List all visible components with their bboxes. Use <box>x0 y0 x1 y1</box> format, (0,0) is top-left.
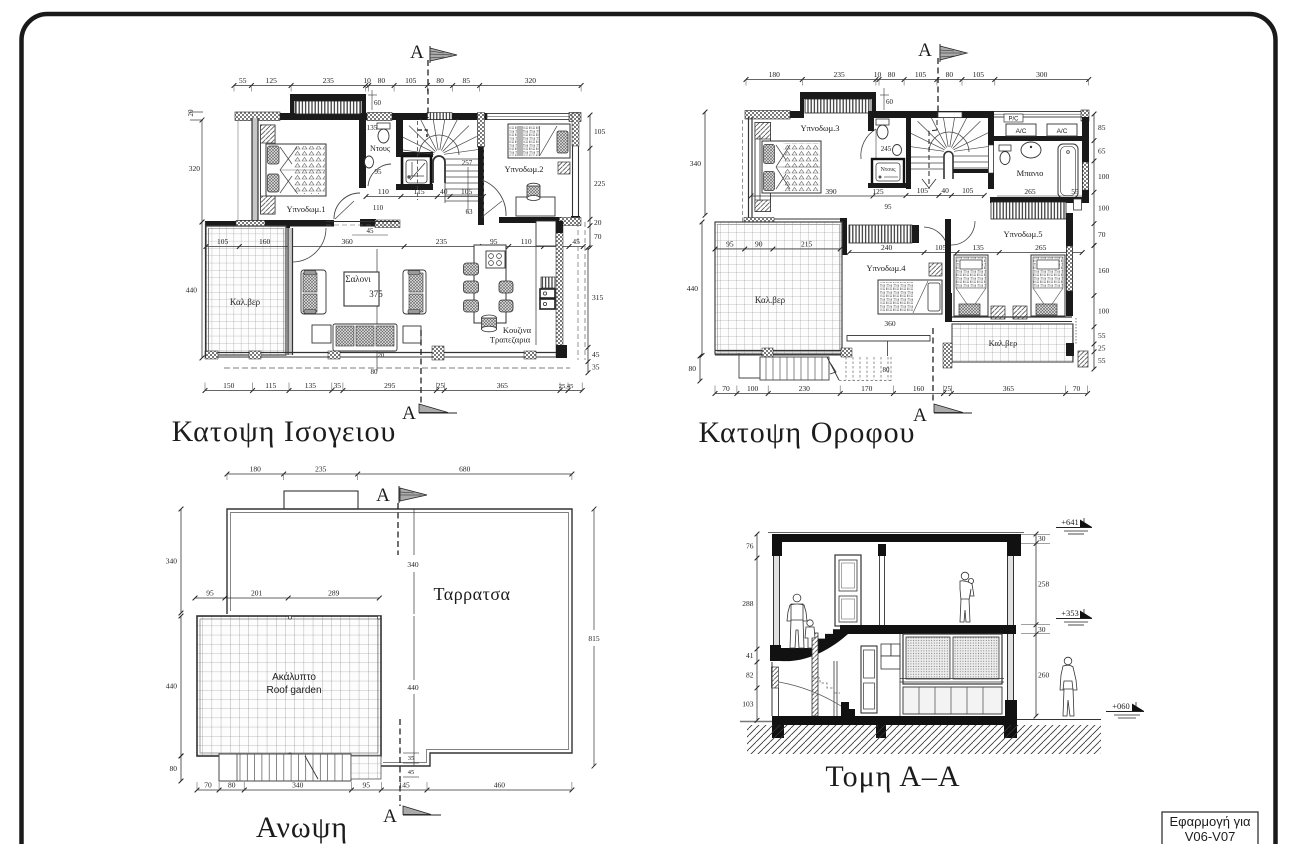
svg-text:V06-V07: V06-V07 <box>1185 829 1236 844</box>
svg-text:Μπανιο: Μπανιο <box>1017 168 1044 178</box>
svg-text:105: 105 <box>962 186 974 195</box>
svg-text:80: 80 <box>228 781 236 790</box>
svg-text:35: 35 <box>408 755 415 762</box>
svg-text:65: 65 <box>1098 146 1106 155</box>
svg-text:A: A <box>402 403 416 424</box>
svg-text:+060: +060 <box>1112 701 1130 711</box>
svg-text:80: 80 <box>170 764 178 773</box>
svg-text:76: 76 <box>746 542 754 551</box>
svg-text:320: 320 <box>189 164 201 173</box>
svg-text:680: 680 <box>459 465 471 474</box>
svg-text:Υπνοδωμ.5: Υπνοδωμ.5 <box>1003 229 1042 239</box>
svg-text:+641: +641 <box>1061 517 1079 527</box>
svg-text:265: 265 <box>1035 243 1047 252</box>
svg-text:80: 80 <box>689 364 697 373</box>
svg-text:170: 170 <box>861 384 873 393</box>
svg-text:Κατοψη Οροφου: Κατοψη Οροφου <box>698 416 915 449</box>
svg-text:135: 135 <box>305 381 317 390</box>
svg-text:95: 95 <box>885 203 893 211</box>
svg-text:135: 135 <box>367 124 378 132</box>
svg-text:Ταρρατσα: Ταρρατσα <box>434 584 511 604</box>
svg-text:160: 160 <box>913 384 925 393</box>
svg-text:60: 60 <box>886 98 894 106</box>
svg-text:201: 201 <box>251 589 263 598</box>
svg-text:95: 95 <box>726 240 734 249</box>
svg-text:460: 460 <box>494 781 506 790</box>
svg-text:240: 240 <box>881 243 893 252</box>
svg-text:80: 80 <box>883 366 891 374</box>
svg-text:300: 300 <box>1036 70 1048 79</box>
svg-text:235: 235 <box>833 70 845 79</box>
svg-text:340: 340 <box>690 159 702 168</box>
svg-text:82: 82 <box>746 670 754 679</box>
svg-text:105: 105 <box>405 76 417 85</box>
svg-text:A/C: A/C <box>1016 128 1027 135</box>
svg-text:45: 45 <box>592 350 600 359</box>
svg-text:30: 30 <box>1038 534 1046 543</box>
svg-text:25,45: 25,45 <box>559 383 574 390</box>
svg-text:A/C: A/C <box>1057 128 1068 135</box>
svg-text:Τομη Α–Α: Τομη Α–Α <box>825 760 960 793</box>
svg-text:Ντους: Ντους <box>880 167 896 173</box>
svg-text:265: 265 <box>1024 187 1036 196</box>
svg-text:Καλ.βερ: Καλ.βερ <box>230 297 261 307</box>
svg-text:95: 95 <box>206 589 214 598</box>
svg-text:115: 115 <box>265 381 276 390</box>
svg-text:P/C: P/C <box>1008 117 1019 123</box>
svg-text:Καλ.βερ: Καλ.βερ <box>989 338 1018 348</box>
svg-text:235: 235 <box>315 465 327 474</box>
svg-text:440: 440 <box>186 286 198 295</box>
svg-text:440: 440 <box>166 682 178 691</box>
svg-text:95: 95 <box>363 781 371 790</box>
svg-text:110: 110 <box>373 204 384 212</box>
svg-text:Καλ.βερ: Καλ.βερ <box>755 295 786 305</box>
svg-text:235: 235 <box>436 237 448 246</box>
svg-text:365: 365 <box>1003 384 1015 393</box>
svg-text:25: 25 <box>437 381 445 390</box>
svg-text:70: 70 <box>594 232 602 241</box>
svg-text:257: 257 <box>462 159 473 167</box>
svg-text:360: 360 <box>884 319 896 328</box>
svg-text:103: 103 <box>742 700 754 709</box>
svg-text:360: 360 <box>341 237 353 246</box>
svg-text:85: 85 <box>462 76 470 85</box>
svg-text:235: 235 <box>323 76 335 85</box>
svg-text:110: 110 <box>378 187 389 196</box>
svg-text:100: 100 <box>1098 307 1110 316</box>
svg-text:80: 80 <box>946 70 954 79</box>
svg-text:Εφαρμογή για: Εφαρμογή για <box>1170 814 1251 829</box>
svg-text:100: 100 <box>1098 203 1110 212</box>
svg-text:10: 10 <box>874 70 882 79</box>
svg-text:Κατοψη Ισογειου: Κατοψη Ισογειου <box>172 415 397 448</box>
svg-text:45: 45 <box>367 227 375 235</box>
svg-text:20: 20 <box>187 109 195 117</box>
svg-text:A: A <box>383 806 397 827</box>
svg-text:258: 258 <box>1038 580 1050 589</box>
svg-text:80: 80 <box>888 70 896 79</box>
svg-text:70: 70 <box>722 384 730 393</box>
svg-text:110: 110 <box>521 237 532 246</box>
svg-text:105: 105 <box>935 243 947 252</box>
svg-text:25: 25 <box>1098 343 1106 352</box>
svg-text:100: 100 <box>1098 172 1110 181</box>
svg-text:105: 105 <box>915 70 927 79</box>
svg-text:365: 365 <box>497 381 509 390</box>
svg-text:440: 440 <box>407 683 419 692</box>
svg-text:115: 115 <box>414 187 425 196</box>
svg-text:180: 180 <box>250 465 262 474</box>
svg-text:Υπνοδωμ.3: Υπνοδωμ.3 <box>800 123 839 133</box>
svg-text:375: 375 <box>369 289 383 299</box>
svg-text:60: 60 <box>374 99 382 107</box>
svg-text:150: 150 <box>223 381 235 390</box>
svg-text:105: 105 <box>917 186 929 195</box>
svg-text:55: 55 <box>1071 187 1079 196</box>
svg-text:35: 35 <box>592 363 600 372</box>
svg-text:340: 340 <box>166 557 178 566</box>
svg-text:Σαλονι: Σαλονι <box>345 274 371 284</box>
svg-text:41: 41 <box>746 651 754 660</box>
svg-text:340: 340 <box>407 560 419 569</box>
svg-text:40: 40 <box>440 187 448 196</box>
svg-text:125: 125 <box>872 187 884 196</box>
svg-text:85: 85 <box>1098 123 1106 132</box>
svg-text:135: 135 <box>972 243 984 252</box>
svg-text:40: 40 <box>941 186 949 195</box>
svg-text:215: 215 <box>801 240 813 249</box>
svg-text:80: 80 <box>378 76 386 85</box>
svg-text:70: 70 <box>1098 230 1106 239</box>
svg-text:340: 340 <box>292 781 304 790</box>
svg-text:245: 245 <box>881 145 892 153</box>
svg-text:Κουζινα: Κουζινα <box>503 325 532 335</box>
svg-text:45: 45 <box>408 769 415 776</box>
svg-text:70: 70 <box>1073 384 1081 393</box>
svg-text:440: 440 <box>687 284 699 293</box>
svg-text:260: 260 <box>1038 671 1050 680</box>
svg-text:815: 815 <box>588 634 600 643</box>
svg-text:295: 295 <box>384 381 396 390</box>
svg-text:25: 25 <box>944 384 952 393</box>
svg-text:105: 105 <box>461 187 473 196</box>
svg-text:55: 55 <box>1098 356 1106 365</box>
svg-text:Υπνοδωμ.4: Υπνοδωμ.4 <box>866 263 906 273</box>
svg-text:90: 90 <box>755 240 763 249</box>
svg-text:80: 80 <box>371 368 379 376</box>
svg-text:A: A <box>410 42 424 63</box>
svg-text:288: 288 <box>742 599 754 608</box>
svg-text:125: 125 <box>266 76 278 85</box>
svg-text:289: 289 <box>328 589 340 598</box>
svg-text:230: 230 <box>799 384 811 393</box>
svg-text:105: 105 <box>594 127 606 136</box>
svg-text:80: 80 <box>436 76 444 85</box>
svg-text:A: A <box>376 485 390 506</box>
svg-text:315: 315 <box>592 293 604 302</box>
svg-text:A: A <box>918 40 932 61</box>
svg-text:Τραπεζαρια: Τραπεζαρια <box>490 335 531 345</box>
svg-text:55: 55 <box>1098 331 1106 340</box>
svg-text:105: 105 <box>217 237 229 246</box>
svg-text:105: 105 <box>973 70 985 79</box>
svg-text:Roof garden: Roof garden <box>266 685 321 696</box>
svg-text:+353: +353 <box>1061 608 1079 618</box>
svg-text:70: 70 <box>204 781 212 790</box>
svg-text:160: 160 <box>259 237 271 246</box>
svg-text:35: 35 <box>334 381 342 390</box>
svg-text:Υπνοδωμ.1: Υπνοδωμ.1 <box>286 204 325 214</box>
svg-text:45: 45 <box>572 237 580 246</box>
svg-text:20: 20 <box>378 352 385 359</box>
svg-text:Ανωψη: Ανωψη <box>256 811 348 844</box>
svg-text:180: 180 <box>769 70 781 79</box>
svg-text:Ντους: Ντους <box>370 144 391 153</box>
svg-text:95: 95 <box>375 168 383 176</box>
svg-text:Υπνοδωμ.2: Υπνοδωμ.2 <box>504 164 543 174</box>
svg-text:30: 30 <box>1038 625 1046 634</box>
svg-text:55: 55 <box>239 76 247 85</box>
svg-text:390: 390 <box>825 187 837 196</box>
svg-text:225: 225 <box>594 179 606 188</box>
svg-text:63: 63 <box>466 208 474 216</box>
svg-text:100: 100 <box>747 384 759 393</box>
svg-text:160: 160 <box>1098 266 1110 275</box>
svg-text:Ακάλυπτο: Ακάλυπτο <box>272 671 316 683</box>
svg-text:320: 320 <box>525 76 537 85</box>
svg-text:10: 10 <box>363 76 371 85</box>
svg-text:20: 20 <box>594 218 602 227</box>
